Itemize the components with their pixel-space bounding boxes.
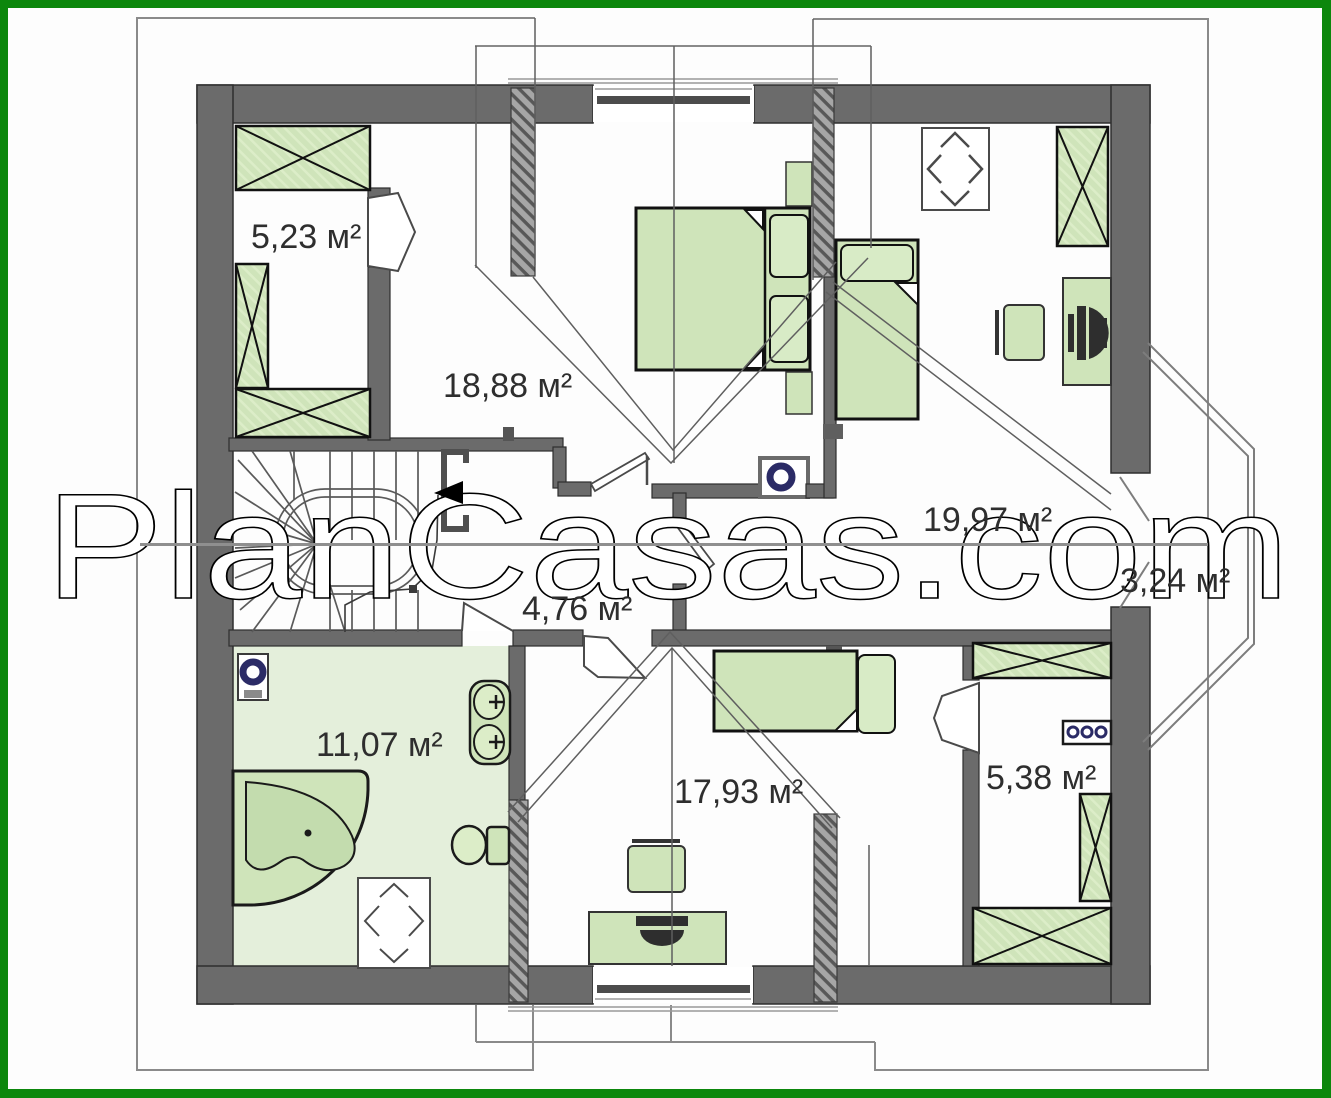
svg-text:17,93 м²: 17,93 м²: [674, 773, 803, 811]
svg-text:4,76 м²: 4,76 м²: [522, 590, 632, 628]
svg-text:19,97 м²: 19,97 м²: [923, 501, 1052, 539]
svg-text:5,23 м²: 5,23 м²: [251, 218, 361, 256]
svg-text:3,24 м²: 3,24 м²: [1120, 562, 1230, 600]
svg-text:5,38 м²: 5,38 м²: [986, 759, 1096, 797]
svg-text:18,88 м²: 18,88 м²: [443, 367, 572, 405]
svg-text:11,07 м²: 11,07 м²: [316, 726, 443, 764]
